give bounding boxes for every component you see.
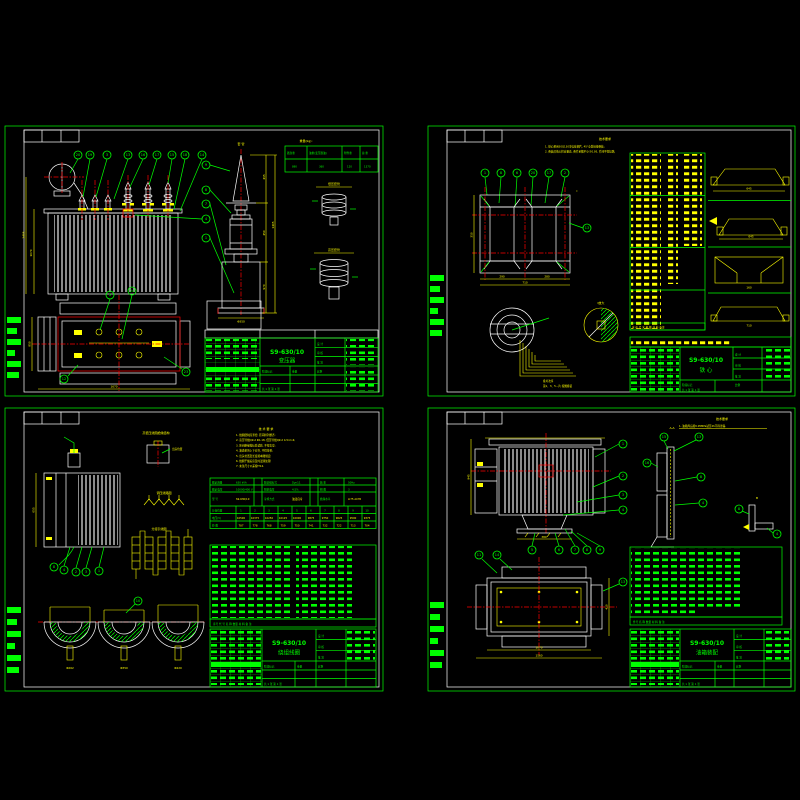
detail-b-caption: B bbox=[756, 496, 758, 500]
svg-text:3: 3 bbox=[622, 493, 624, 497]
bom-header: 件号 名 称 数量 材 料 备 注 bbox=[633, 620, 665, 624]
svg-text:10000/400 V: 10000/400 V bbox=[236, 488, 253, 492]
cad-canvas: { "canvas": {"width": 800, "height": 800… bbox=[0, 0, 800, 800]
top-caption: 高低压线圈绝缘结构 bbox=[142, 430, 169, 435]
svg-text:额定容量: 额定容量 bbox=[212, 481, 223, 485]
svg-text:2. 高压导线QZ-2 Φ1.18, 低压导线QZ-2 4.: 2. 高压导线QZ-2 Φ1.18, 低压导线QZ-2 4.5×1.6; bbox=[236, 438, 295, 442]
tap-lead-schematic: 分接引线图 bbox=[132, 526, 192, 579]
bushing-detail: 套 管 415 450 970 1405 Φ350 bbox=[218, 141, 277, 324]
tank-plan-view: 1070 1560 420 11 14 13 bbox=[467, 551, 627, 658]
svg-text:290: 290 bbox=[499, 275, 505, 279]
profile-2: 645 bbox=[709, 217, 787, 239]
section-aa-detail: A-A 15 13 16 8 4 bbox=[643, 426, 707, 547]
left-stamp-blocks bbox=[430, 275, 444, 336]
svg-text:787: 787 bbox=[239, 524, 244, 528]
profile-1: 645 bbox=[711, 169, 789, 191]
svg-text:4.5%: 4.5% bbox=[292, 488, 299, 492]
svg-text:器身重: 器身重 bbox=[287, 151, 295, 155]
svg-text:1: 1 bbox=[622, 442, 624, 446]
svg-text:1405: 1405 bbox=[271, 221, 275, 228]
svg-text:9375: 9375 bbox=[364, 516, 371, 520]
svg-text:5: 5 bbox=[296, 509, 298, 513]
svg-text:审 核: 审 核 bbox=[736, 645, 742, 649]
plan-bushings bbox=[74, 329, 162, 358]
svg-text:23: 23 bbox=[184, 370, 188, 374]
bom-header: 序 代 号 名 称 数 材 料 备注 bbox=[632, 326, 665, 330]
svg-text:批 准: 批 准 bbox=[318, 656, 324, 660]
svg-text:2: 2 bbox=[254, 509, 256, 513]
lead-caption: 出头位置 bbox=[172, 447, 183, 451]
svg-text:共 1 张 第 1 张: 共 1 张 第 1 张 bbox=[264, 682, 282, 686]
svg-text:1. 线圈绕制应紧密, 匝间排列整齐;: 1. 线圈绕制应紧密, 匝间排列整齐; bbox=[236, 433, 276, 437]
coil-section-3: Φ420 bbox=[152, 605, 204, 670]
profile-4: 710 bbox=[711, 307, 789, 328]
svg-text:2: 2 bbox=[622, 474, 624, 478]
svg-text:2. 叠装后铁心柱应垂直, 叠片系数不小于0.95, 片间不: 2. 叠装后铁心柱应垂直, 叠片系数不小于0.95, 片间不得短路. bbox=[545, 150, 615, 154]
svg-text:13: 13 bbox=[126, 153, 130, 157]
svg-text:655: 655 bbox=[32, 507, 36, 513]
svg-text:24: 24 bbox=[130, 289, 135, 293]
svg-text:704: 704 bbox=[365, 524, 370, 528]
svg-text:附件重: 附件重 bbox=[344, 151, 352, 155]
svg-text:审 核: 审 核 bbox=[317, 351, 323, 355]
svg-text:15: 15 bbox=[170, 153, 174, 157]
svg-text:比例: 比例 bbox=[317, 370, 323, 374]
svg-text:9750: 9750 bbox=[322, 516, 329, 520]
svg-text:阶段标记: 阶段标记 bbox=[682, 665, 693, 669]
svg-text:油浸自冷: 油浸自冷 bbox=[292, 497, 303, 501]
svg-text:630 kVA: 630 kVA bbox=[236, 481, 247, 485]
svg-text:绝缘水平: 绝缘水平 bbox=[320, 497, 331, 501]
svg-text:13: 13 bbox=[621, 580, 625, 584]
svg-text:19: 19 bbox=[88, 153, 92, 157]
svg-text:160: 160 bbox=[746, 286, 752, 290]
svg-text:10: 10 bbox=[136, 599, 140, 603]
svg-text:1: 1 bbox=[484, 171, 486, 175]
svg-text:10000: 10000 bbox=[293, 516, 302, 520]
svg-text:20: 20 bbox=[76, 153, 80, 157]
section-aa-caption: A-A bbox=[669, 426, 675, 430]
svg-text:14: 14 bbox=[495, 553, 500, 557]
svg-text:3: 3 bbox=[268, 509, 270, 513]
left-stamp-blocks bbox=[7, 317, 21, 378]
svg-text:945: 945 bbox=[467, 474, 471, 480]
svg-text:重量: 重量 bbox=[292, 370, 298, 374]
svg-text:6. 线圈干燥后应及时浸漆处理;: 6. 线圈干燥后应及时浸漆处理; bbox=[236, 459, 271, 463]
svg-text:9875: 9875 bbox=[308, 516, 315, 520]
tech-notes: 技术要求 1. 油箱焊后按0.05MPa试压2h不得渗漏. bbox=[679, 416, 767, 429]
svg-text:645: 645 bbox=[746, 187, 752, 191]
svg-text:6: 6 bbox=[558, 548, 560, 552]
reg-caption: 调压线路图 bbox=[156, 490, 171, 495]
svg-text:3. 匝间绝缘按标准试验, 不得击穿;: 3. 匝间绝缘按标准试验, 不得击穿; bbox=[236, 443, 276, 447]
svg-text:比例: 比例 bbox=[318, 665, 324, 669]
svg-text:阶段标记: 阶段标记 bbox=[262, 370, 273, 374]
svg-text:批 准: 批 准 bbox=[736, 656, 742, 660]
svg-text:420: 420 bbox=[605, 604, 609, 610]
svg-text:778: 778 bbox=[253, 524, 258, 528]
core-centerlines bbox=[472, 187, 577, 280]
svg-text:4: 4 bbox=[63, 568, 66, 572]
bom-header: 序号 代 号 名 称 数量 材 料 备 注 bbox=[213, 622, 252, 626]
svg-text:Φ262: Φ262 bbox=[66, 666, 74, 670]
svg-text:1: 1 bbox=[205, 236, 207, 240]
svg-text:设 计: 设 计 bbox=[317, 342, 323, 346]
svg-text:2: 2 bbox=[75, 570, 77, 574]
svg-text:5. 出头位置及长度按本图规定;: 5. 出头位置及长度按本图规定; bbox=[236, 454, 271, 458]
svg-text:3: 3 bbox=[348, 488, 350, 492]
balloons-top-row: 20 19 3 13 16 17 15 18 14 bbox=[70, 151, 206, 211]
svg-text:6: 6 bbox=[516, 171, 518, 175]
svg-text:9: 9 bbox=[205, 163, 207, 167]
hv-bushing-caption: 高压套管 bbox=[328, 247, 340, 252]
svg-text:8: 8 bbox=[700, 475, 702, 479]
coil-section-1: Φ262 bbox=[44, 607, 96, 670]
left-stamp-blocks bbox=[7, 607, 21, 673]
dim-front-height: 1070 bbox=[29, 249, 33, 256]
spare-box bbox=[207, 301, 261, 329]
drawing-number: S9-630/10 bbox=[689, 357, 723, 364]
svg-text:450: 450 bbox=[262, 230, 266, 236]
winding-elevation: 655 8 4 2 3 1 bbox=[32, 437, 121, 576]
svg-text:970: 970 bbox=[262, 284, 266, 290]
lead-position-detail: 出头位置 bbox=[147, 441, 183, 467]
title-block: S9-630/10 铁 心 设 计 审 核 批 准 阶段标记 比例 共 1 张 … bbox=[630, 347, 791, 392]
sheet-tank: 技术要求 1. 油箱焊后按0.05MPa试压2h不得渗漏. 945 380 1 … bbox=[427, 407, 796, 692]
svg-text:阶段标记: 阶段标记 bbox=[682, 383, 693, 387]
svg-text:722: 722 bbox=[337, 524, 342, 528]
svg-text:50Hz: 50Hz bbox=[348, 481, 355, 485]
svg-text:7: 7 bbox=[574, 548, 576, 552]
lv-bushing-caption: 低压套管 bbox=[328, 181, 340, 186]
svg-text:4: 4 bbox=[205, 217, 208, 221]
tank-front-view: 945 380 1 2 3 4 5 6 7 8 9 bbox=[467, 433, 628, 554]
lv-bushing-detail: 低压套管 bbox=[312, 181, 356, 225]
svg-text:415: 415 bbox=[262, 174, 266, 180]
lamination-caption: 叠片次序 bbox=[543, 379, 554, 383]
svg-text:Φ420: Φ420 bbox=[174, 666, 182, 670]
svg-text:120: 120 bbox=[347, 165, 352, 169]
svg-text:比例: 比例 bbox=[735, 383, 741, 387]
svg-text:2: 2 bbox=[564, 171, 566, 175]
svg-text:S9-630/10: S9-630/10 bbox=[236, 497, 250, 501]
svg-text:重量: 重量 bbox=[297, 665, 303, 669]
notes-title: 技术要求 bbox=[599, 136, 611, 141]
svg-text:13: 13 bbox=[697, 435, 701, 439]
svg-text:审 核: 审 核 bbox=[318, 645, 324, 649]
bom-table: 件号 名 称 数量 材 料 备 注 bbox=[630, 547, 782, 625]
svg-text:匝 数: 匝 数 bbox=[212, 524, 218, 528]
svg-text:8: 8 bbox=[586, 548, 588, 552]
zoom-detail: Ⅰ放大 bbox=[584, 300, 618, 342]
svg-text:1. 铁心采用30Q130冷轧硅钢片, 45°全斜接缝叠装;: 1. 铁心采用30Q130冷轧硅钢片, 45°全斜接缝叠装; bbox=[545, 145, 605, 149]
notes-title: 技术要求 bbox=[716, 416, 728, 421]
dim-total-height: 1405 bbox=[22, 231, 26, 238]
svg-text:设 计: 设 计 bbox=[735, 353, 741, 357]
winding-balloons: 8 4 2 3 1 bbox=[50, 547, 104, 576]
bushing-detail-caption: 套 管 bbox=[238, 141, 245, 146]
svg-text:759: 759 bbox=[281, 524, 286, 528]
tap-caption: 分接引线图 bbox=[151, 526, 166, 531]
svg-text:4. 油道垫块上下对齐, 不得位移;: 4. 油道垫块上下对齐, 不得位移; bbox=[236, 449, 273, 453]
svg-text:Φ350: Φ350 bbox=[237, 320, 245, 324]
svg-text:13: 13 bbox=[585, 226, 589, 230]
bom-upper-strip bbox=[630, 337, 791, 347]
svg-text:共 1 张 第 1 张: 共 1 张 第 1 张 bbox=[682, 682, 700, 686]
svg-text:油重(变压器油): 油重(变压器油) bbox=[309, 151, 327, 155]
drawing-number: S9-630/10 bbox=[690, 640, 724, 647]
sheet-core: 技术要求 1. 铁心采用30Q130冷轧硅钢片, 45°全斜接缝叠装; 2. 叠… bbox=[427, 125, 796, 397]
bom-table: 序 代 号 名 称 数 材 料 备注 bbox=[630, 153, 705, 330]
svg-text:645: 645 bbox=[748, 235, 754, 239]
coil-sections: Φ262 Φ350 Φ420 10 bbox=[38, 597, 206, 670]
svg-text:8: 8 bbox=[338, 509, 340, 513]
tech-notes: 技术要求 1. 铁心采用30Q130冷轧硅钢片, 45°全斜接缝叠装; 2. 叠… bbox=[545, 136, 615, 154]
svg-text:10500: 10500 bbox=[237, 516, 246, 520]
notes-title: 技 术 要 求 bbox=[259, 426, 274, 431]
front-view: 1070 1405 bbox=[22, 162, 183, 300]
svg-text:总 重: 总 重 bbox=[362, 151, 368, 155]
svg-text:710: 710 bbox=[746, 324, 752, 328]
svg-text:17: 17 bbox=[547, 171, 551, 175]
detail-b: B 8 4 bbox=[735, 496, 781, 538]
hv-bushing-detail: 高压套管 bbox=[310, 247, 358, 299]
weight-table: 重量(kg): 器身重 油重(变压器油) 附件重 总 重 890 360 120… bbox=[285, 138, 378, 172]
regulation-circuit: 调压线路图 bbox=[144, 490, 184, 505]
svg-text:1: 1 bbox=[240, 509, 242, 513]
svg-text:1070: 1070 bbox=[535, 646, 542, 650]
plan-view: 1670 850 5 24 12 23 bbox=[28, 287, 191, 391]
svg-text:11: 11 bbox=[477, 553, 481, 557]
svg-text:联结组标号: 联结组标号 bbox=[264, 481, 277, 485]
svg-text:9: 9 bbox=[352, 509, 354, 513]
svg-text:12: 12 bbox=[62, 377, 66, 381]
profile-3: 160 bbox=[715, 257, 783, 290]
svg-text:1560: 1560 bbox=[535, 654, 542, 658]
tank-cover bbox=[44, 209, 182, 213]
svg-text:10375: 10375 bbox=[251, 516, 260, 520]
svg-text:7: 7 bbox=[205, 202, 207, 206]
svg-text:9: 9 bbox=[599, 548, 601, 552]
svg-text:8: 8 bbox=[500, 171, 502, 175]
title-block: S9-630/10 变压器 设 计 审 核 批 准 阶段标记 重量 比例 共 1… bbox=[205, 330, 378, 392]
svg-text:共 1 张 第 1 张: 共 1 张 第 1 张 bbox=[682, 388, 700, 392]
sheet-outline: 1070 1405 20 19 3 13 16 17 15 18 14 9 8 … bbox=[4, 125, 384, 397]
svg-text:14: 14 bbox=[200, 153, 205, 157]
tank-fins bbox=[54, 215, 172, 292]
svg-text:280: 280 bbox=[544, 275, 550, 279]
plan-balloons: 11 14 13 bbox=[475, 551, 627, 591]
drawing-title: 油箱装配 bbox=[696, 649, 719, 657]
svg-text:冷却方式: 冷却方式 bbox=[264, 497, 275, 501]
svg-text:相 数: 相 数 bbox=[320, 488, 326, 492]
sheet-winding: 高低压线圈绝缘结构 出头位置 655 8 4 2 3 1 bbox=[4, 407, 384, 692]
svg-text:17: 17 bbox=[155, 153, 159, 157]
bom-table: 序号 代 号 名 称 数量 材 料 备 注 bbox=[210, 545, 376, 627]
svg-text:360: 360 bbox=[319, 165, 324, 169]
drawing-number: S9-630/10 bbox=[270, 349, 304, 356]
svg-text:5: 5 bbox=[109, 293, 111, 297]
svg-text:共 1 张 第 1 张: 共 1 张 第 1 张 bbox=[262, 387, 280, 391]
svg-text:4: 4 bbox=[622, 508, 625, 512]
svg-text:3: 3 bbox=[85, 570, 87, 574]
core-plan-view: 1 8 6 20 17 2 290 280 71 bbox=[470, 169, 592, 285]
drawing-title: 变压器 bbox=[279, 357, 296, 365]
svg-text:阻抗电压: 阻抗电压 bbox=[264, 488, 275, 492]
svg-text:15: 15 bbox=[662, 435, 666, 439]
svg-text:20: 20 bbox=[531, 171, 535, 175]
drawing-number: S9-630/10 bbox=[272, 640, 306, 647]
svg-text:额定电压: 额定电压 bbox=[212, 488, 223, 492]
svg-text:380: 380 bbox=[541, 535, 547, 539]
svg-text:LI75 AC35: LI75 AC35 bbox=[348, 497, 362, 501]
svg-text:8: 8 bbox=[738, 507, 740, 511]
svg-text:741: 741 bbox=[309, 524, 314, 528]
svg-text:4: 4 bbox=[776, 532, 779, 536]
svg-text:重量: 重量 bbox=[717, 665, 723, 669]
svg-text:713: 713 bbox=[351, 524, 356, 528]
svg-text:750: 750 bbox=[295, 524, 300, 528]
svg-text:710: 710 bbox=[522, 281, 528, 285]
svg-text:16: 16 bbox=[645, 461, 649, 465]
svg-text:7. 未注尺寸公差按IT14.: 7. 未注尺寸公差按IT14. bbox=[236, 464, 264, 468]
title-block: S9-630/10 绕组线圈 设 计 审 核 批 准 阶段标记 重量 比例 共 … bbox=[210, 629, 376, 687]
lamination-order-detail: 叠片次序 第1、3、5…片 按图叠装 bbox=[490, 308, 576, 388]
drawing-title: 绕组线圈 bbox=[278, 649, 301, 657]
svg-text:3: 3 bbox=[106, 153, 108, 157]
svg-text:1370: 1370 bbox=[364, 165, 371, 169]
zoom-caption: Ⅰ放大 bbox=[598, 300, 605, 305]
weight-table-caption: 重量(kg): bbox=[300, 138, 313, 143]
coil-section-2: Φ350 bbox=[98, 610, 150, 670]
title-block: S9-630/10 油箱装配 设 计 审 核 批 准 阶段标记 重量 比例 共 … bbox=[630, 629, 791, 687]
svg-text:分接位置: 分接位置 bbox=[212, 509, 223, 513]
svg-text:审 核: 审 核 bbox=[735, 364, 741, 368]
svg-text:4: 4 bbox=[702, 501, 705, 505]
svg-text:18: 18 bbox=[183, 153, 187, 157]
svg-text:6: 6 bbox=[310, 509, 312, 513]
drawing-title: 铁 心 bbox=[700, 366, 713, 374]
lamination-note: 第1、3、5…片 按图叠装 bbox=[543, 384, 573, 388]
svg-text:10: 10 bbox=[365, 509, 369, 513]
svg-text:8: 8 bbox=[53, 565, 55, 569]
svg-text:频 率: 频 率 bbox=[320, 481, 326, 485]
svg-text:7: 7 bbox=[324, 509, 326, 513]
tech-notes: 技 术 要 求 1. 线圈绕制应紧密, 匝间排列整齐; 2. 高压导线QZ-2 … bbox=[236, 426, 295, 468]
svg-text:890: 890 bbox=[292, 165, 297, 169]
svg-text:Dyn11: Dyn11 bbox=[292, 481, 301, 485]
svg-text:批 准: 批 准 bbox=[735, 375, 741, 379]
svg-text:1. 油箱焊后按0.05MPa试压2h不得渗漏.: 1. 油箱焊后按0.05MPa试压2h不得渗漏. bbox=[679, 424, 726, 428]
svg-text:型 号: 型 号 bbox=[212, 497, 218, 501]
svg-text:1: 1 bbox=[98, 569, 100, 573]
svg-text:设 计: 设 计 bbox=[318, 634, 324, 638]
svg-text:4: 4 bbox=[282, 509, 284, 513]
lamination-profiles: 645 645 160 710 bbox=[708, 169, 791, 328]
svg-text:9625: 9625 bbox=[336, 516, 343, 520]
svg-text:5: 5 bbox=[531, 548, 533, 552]
svg-text:10125: 10125 bbox=[279, 516, 288, 520]
svg-text:9500: 9500 bbox=[350, 516, 357, 520]
svg-text:8: 8 bbox=[205, 188, 207, 192]
svg-text:16: 16 bbox=[141, 153, 145, 157]
svg-text:Ⅰ: Ⅰ bbox=[577, 189, 578, 193]
svg-text:850: 850 bbox=[28, 341, 32, 347]
svg-text:阶段标记: 阶段标记 bbox=[264, 665, 275, 669]
svg-text:310: 310 bbox=[470, 232, 474, 238]
svg-text:电压(V): 电压(V) bbox=[212, 516, 221, 520]
svg-text:比例: 比例 bbox=[736, 665, 742, 669]
spec-table: 额定容量 630 kVA 联结组标号 Dyn11 频 率 50Hz 额定电压 1… bbox=[210, 478, 376, 529]
svg-text:10250: 10250 bbox=[265, 516, 274, 520]
bushing-dim-lines bbox=[218, 155, 277, 318]
svg-text:设 计: 设 计 bbox=[736, 634, 742, 638]
svg-text:768: 768 bbox=[267, 524, 272, 528]
svg-text:732: 732 bbox=[323, 524, 328, 528]
svg-text:Φ350: Φ350 bbox=[120, 666, 128, 670]
svg-text:批 准: 批 准 bbox=[317, 360, 323, 364]
svg-text:1670: 1670 bbox=[110, 385, 117, 389]
left-stamp-blocks bbox=[430, 602, 444, 668]
